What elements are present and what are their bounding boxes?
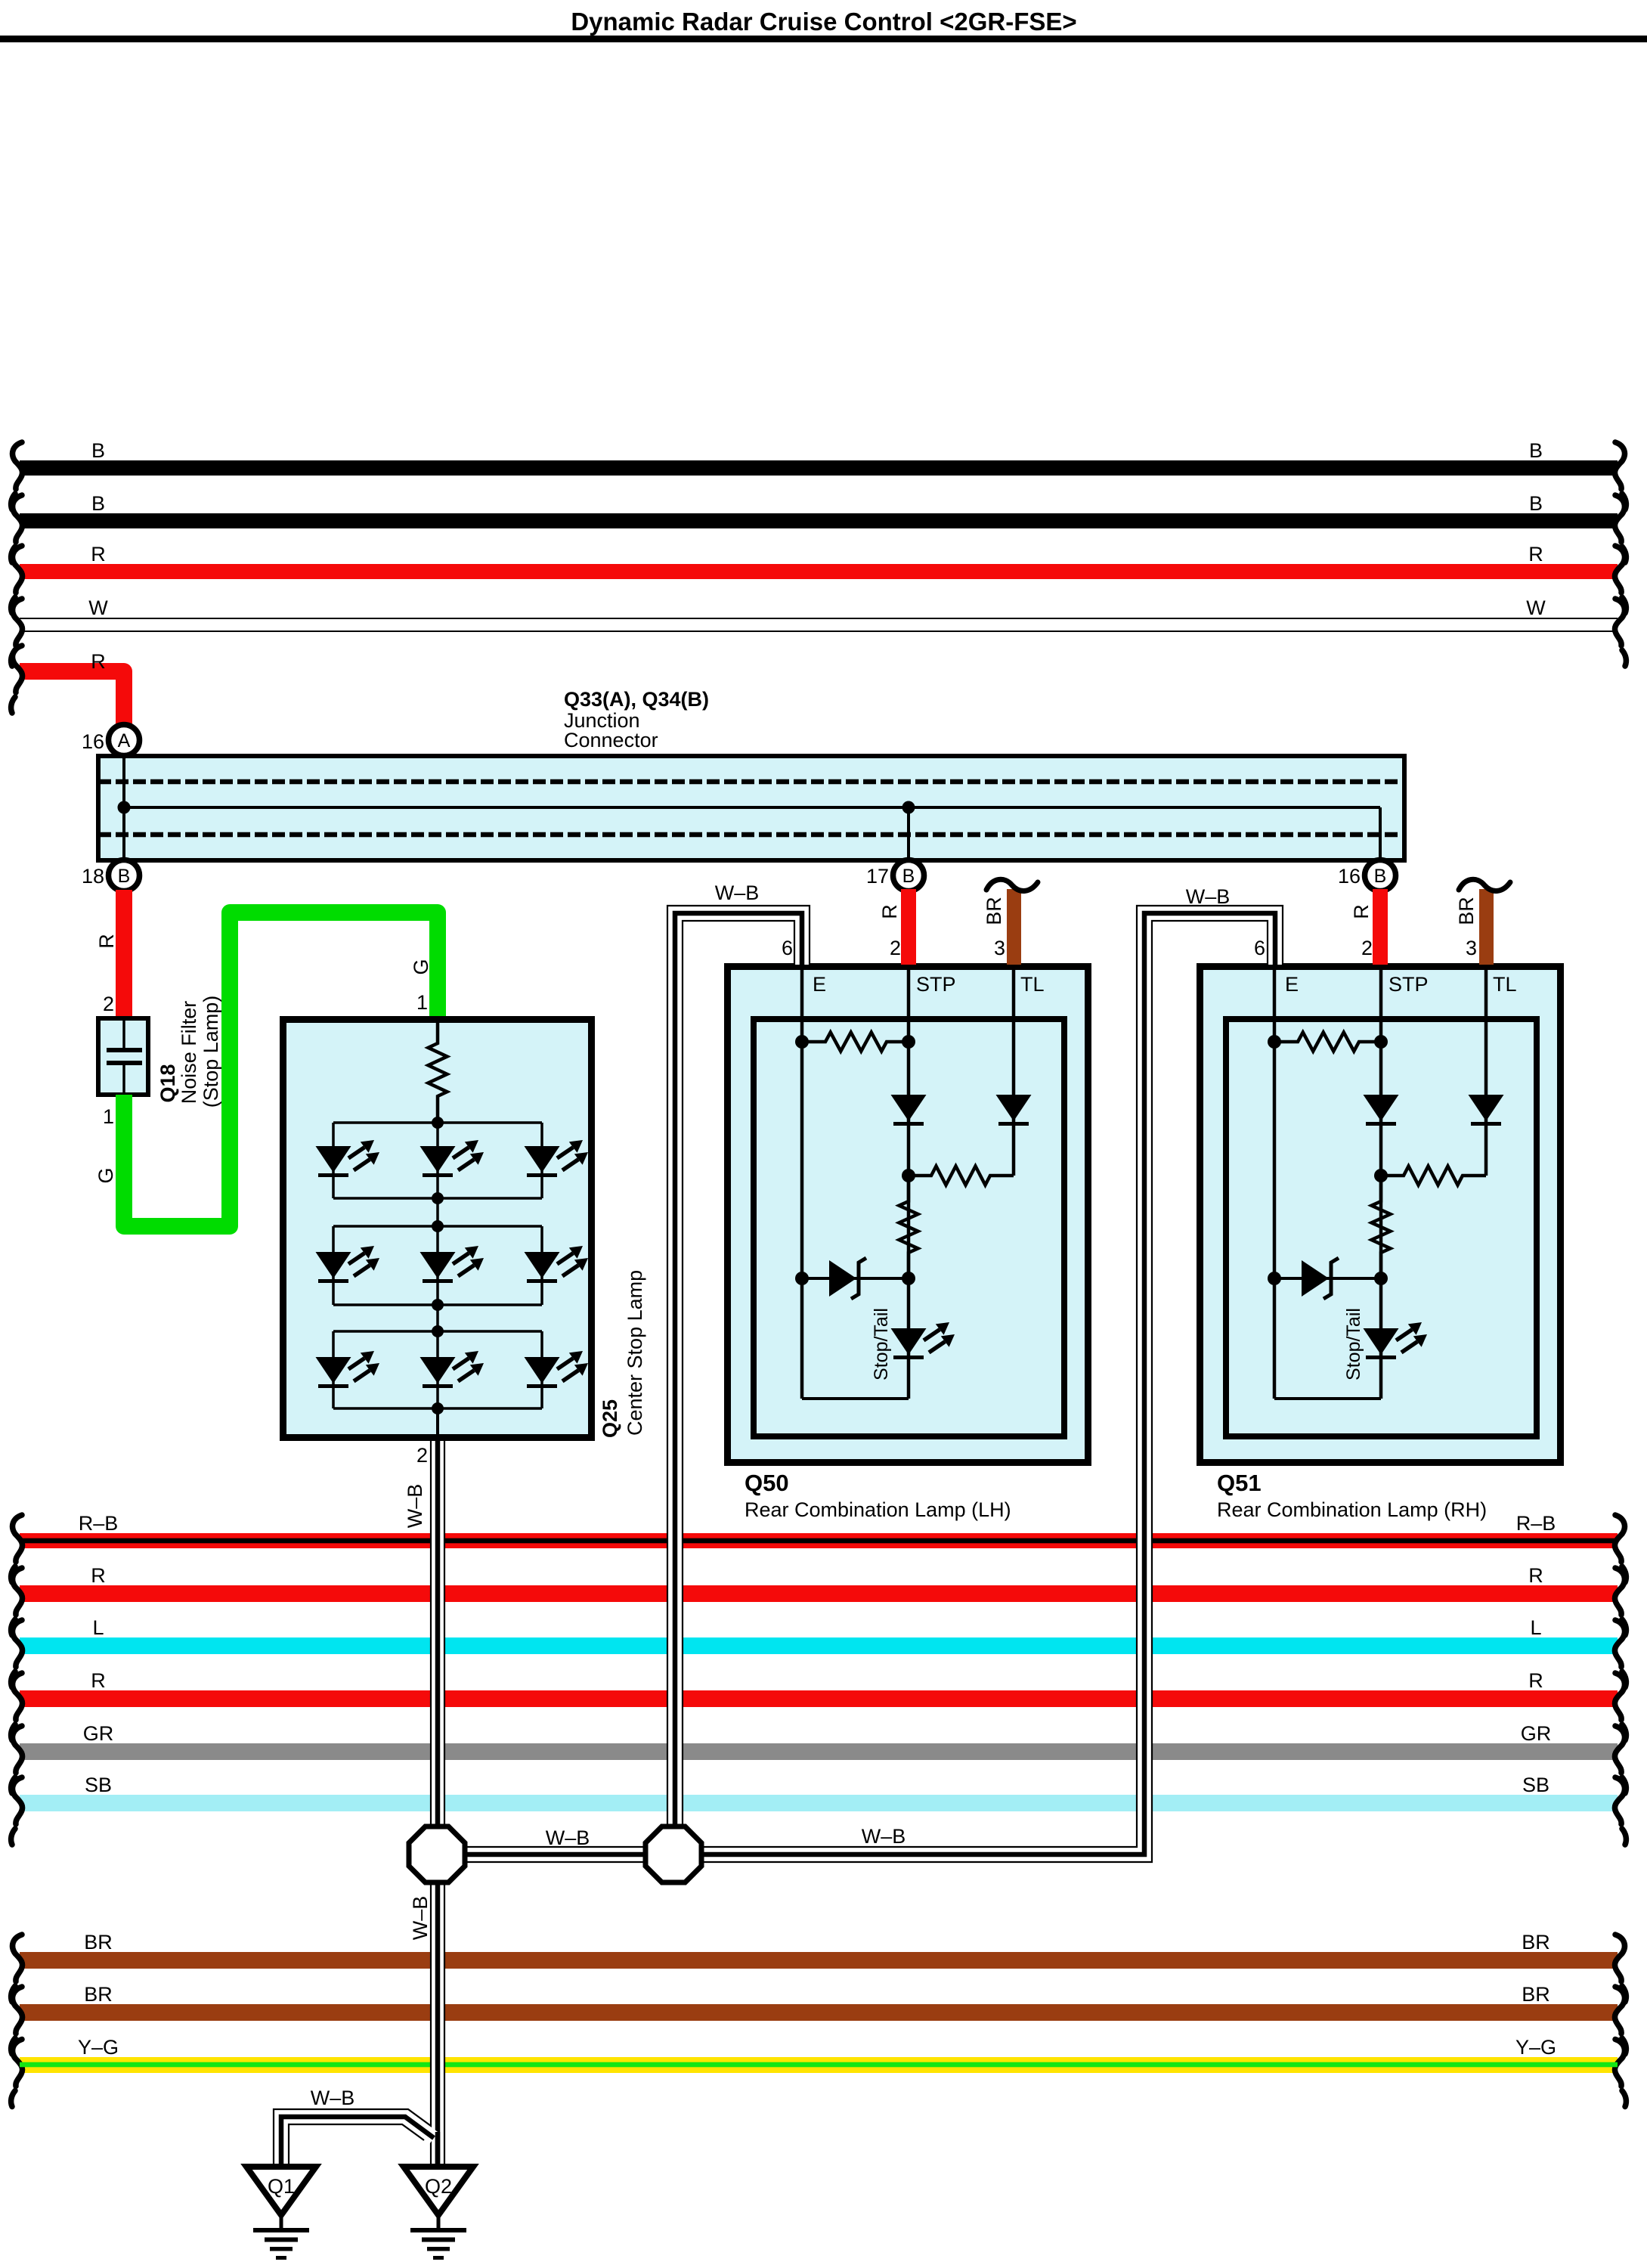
svg-text:R: R xyxy=(878,904,901,919)
svg-text:BR: BR xyxy=(1522,1983,1550,2006)
svg-text:B: B xyxy=(118,866,131,887)
svg-text:W–B: W–B xyxy=(862,1825,906,1848)
svg-text:Q51: Q51 xyxy=(1217,1470,1262,1496)
svg-text:BR: BR xyxy=(1522,1931,1550,1954)
svg-text:W–B: W–B xyxy=(409,1896,432,1941)
svg-text:Y–G: Y–G xyxy=(1515,2036,1556,2059)
svg-text:BR: BR xyxy=(84,1931,113,1954)
svg-text:2: 2 xyxy=(1361,937,1373,959)
svg-text:18: 18 xyxy=(82,865,104,888)
svg-text:R: R xyxy=(95,934,118,949)
svg-text:2: 2 xyxy=(103,993,114,1015)
svg-text:Center Stop Lamp: Center Stop Lamp xyxy=(624,1270,646,1436)
svg-text:Q1: Q1 xyxy=(268,2175,295,2198)
svg-text:Q18: Q18 xyxy=(156,1064,179,1102)
svg-text:Q25: Q25 xyxy=(599,1399,621,1438)
svg-text:R–B: R–B xyxy=(1516,1512,1556,1535)
svg-text:2: 2 xyxy=(416,1444,428,1467)
svg-text:Connector: Connector xyxy=(564,729,658,751)
svg-text:BR: BR xyxy=(983,897,1005,925)
svg-text:SB: SB xyxy=(85,1774,112,1796)
svg-text:TL: TL xyxy=(1493,973,1517,996)
svg-text:B: B xyxy=(91,492,105,515)
svg-text:Stop/Tail: Stop/Tail xyxy=(871,1308,892,1380)
svg-text:W: W xyxy=(88,596,108,619)
svg-text:B: B xyxy=(1529,439,1543,462)
svg-text:R: R xyxy=(91,1669,106,1692)
svg-text:3: 3 xyxy=(994,937,1005,959)
svg-text:E: E xyxy=(1285,973,1299,996)
svg-text:Q33(A), Q34(B): Q33(A), Q34(B) xyxy=(564,688,709,711)
svg-text:Stop/Tail: Stop/Tail xyxy=(1343,1308,1364,1380)
svg-text:B: B xyxy=(902,866,915,887)
svg-text:(Stop Lamp): (Stop Lamp) xyxy=(200,996,222,1108)
svg-text:Rear Combination Lamp (RH): Rear Combination Lamp (RH) xyxy=(1217,1498,1487,1521)
svg-text:R: R xyxy=(91,1564,106,1587)
svg-text:W–B: W–B xyxy=(546,1826,590,1849)
svg-text:R: R xyxy=(91,543,106,565)
svg-text:R: R xyxy=(91,650,106,673)
svg-text:Dynamic Radar Cruise Control <: Dynamic Radar Cruise Control <2GR-FSE> xyxy=(571,8,1076,36)
svg-text:3: 3 xyxy=(1466,937,1477,959)
svg-text:1: 1 xyxy=(416,991,428,1014)
svg-text:R–B: R–B xyxy=(79,1512,119,1535)
svg-text:6: 6 xyxy=(1254,937,1265,959)
svg-text:W–B: W–B xyxy=(404,1484,426,1529)
svg-text:B: B xyxy=(91,439,105,462)
svg-text:TL: TL xyxy=(1020,973,1045,996)
svg-text:G: G xyxy=(94,1167,117,1183)
svg-text:STP: STP xyxy=(916,973,956,996)
svg-text:17: 17 xyxy=(866,865,889,888)
svg-text:E: E xyxy=(813,973,826,996)
svg-text:W–B: W–B xyxy=(715,881,760,904)
svg-text:Y–G: Y–G xyxy=(78,2036,119,2059)
svg-text:BR: BR xyxy=(1455,897,1478,925)
svg-text:Q2: Q2 xyxy=(425,2175,452,2198)
svg-text:B: B xyxy=(1374,866,1387,887)
svg-text:A: A xyxy=(118,730,131,751)
svg-text:2: 2 xyxy=(890,937,901,959)
svg-text:16: 16 xyxy=(1338,865,1361,888)
svg-text:GR: GR xyxy=(1521,1722,1552,1745)
svg-text:R: R xyxy=(1350,904,1373,919)
svg-text:B: B xyxy=(1529,492,1543,515)
svg-text:W–B: W–B xyxy=(311,2087,355,2109)
svg-text:L: L xyxy=(92,1616,104,1639)
svg-text:W: W xyxy=(1526,596,1546,619)
svg-text:6: 6 xyxy=(782,937,793,959)
svg-text:R: R xyxy=(1528,1669,1543,1692)
svg-text:W–B: W–B xyxy=(1186,885,1231,908)
svg-text:Q50: Q50 xyxy=(745,1470,789,1496)
svg-text:16: 16 xyxy=(82,730,104,753)
svg-text:Rear Combination Lamp (LH): Rear Combination Lamp (LH) xyxy=(745,1498,1011,1521)
svg-text:R: R xyxy=(1528,543,1543,565)
svg-text:1: 1 xyxy=(103,1105,114,1128)
svg-text:BR: BR xyxy=(84,1983,113,2006)
svg-text:SB: SB xyxy=(1522,1774,1549,1796)
svg-text:L: L xyxy=(1530,1616,1541,1639)
svg-text:Noise Filter: Noise Filter xyxy=(178,1001,200,1105)
svg-text:R: R xyxy=(1528,1564,1543,1587)
svg-text:G: G xyxy=(410,959,432,974)
svg-text:GR: GR xyxy=(83,1722,114,1745)
svg-text:STP: STP xyxy=(1388,973,1429,996)
